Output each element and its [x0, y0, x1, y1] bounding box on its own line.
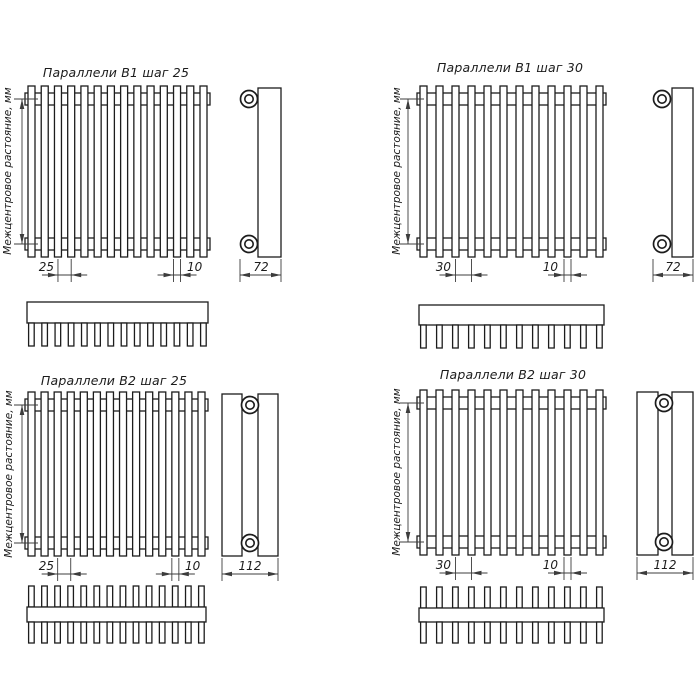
dimension-arrow [406, 532, 411, 542]
dimension-arrow [472, 273, 482, 278]
tube-section [82, 323, 88, 346]
tube-section [549, 325, 555, 348]
tube [106, 392, 113, 556]
bottom-header [417, 536, 606, 548]
step-dimension-label: 30 [436, 558, 452, 572]
bottom-header [417, 238, 606, 250]
tube [133, 392, 140, 556]
tube [596, 86, 603, 257]
tube-section [533, 587, 539, 608]
tube [516, 86, 523, 257]
tube-section [199, 622, 205, 643]
tube-section [469, 587, 475, 608]
step-dimension-label: 25 [39, 260, 54, 274]
front-view [25, 392, 208, 556]
dimension-arrow [653, 273, 663, 278]
radiator-technical-drawing: Параллели В1 шаг 25 25 10 72 Межцентрово… [0, 0, 700, 700]
bottom-header [25, 537, 208, 549]
diagram-b1-step-30: Параллели В1 шаг 30 30 10 72 Межцентрово… [391, 60, 693, 348]
dimension-arrow [406, 234, 411, 244]
dimension-arrow [240, 273, 250, 278]
tube [187, 86, 194, 257]
tube-section [485, 325, 491, 348]
tube-section [172, 586, 178, 607]
side-column [672, 392, 693, 555]
tube-section [42, 622, 48, 643]
tube-section [485, 587, 491, 608]
tube [94, 86, 101, 257]
top-view [27, 302, 208, 346]
tube-section [146, 622, 152, 643]
tube [420, 86, 427, 257]
tube [532, 86, 539, 257]
tube-section [201, 323, 207, 346]
tube [28, 86, 35, 257]
tube [146, 392, 153, 556]
axis-label: Межцентровое растояние, мм [3, 390, 15, 558]
tube [484, 86, 491, 257]
side-column [222, 394, 242, 556]
tube [452, 86, 459, 257]
tube-width-dimension-label: 10 [187, 260, 203, 274]
tube [596, 390, 603, 555]
dimension-arrow [20, 533, 25, 543]
tube-section [581, 622, 587, 643]
depth-dimension-label: 112 [239, 559, 262, 573]
tube-section [159, 586, 165, 607]
tube-section [453, 622, 459, 643]
tube-section [485, 622, 491, 643]
side-view [637, 392, 693, 555]
dimension-arrow [571, 273, 581, 278]
tube-section [501, 587, 507, 608]
tube-section [517, 622, 523, 643]
tube [185, 392, 192, 556]
tube [54, 392, 61, 556]
tube [160, 86, 167, 257]
tube-section [29, 323, 35, 346]
axis-label: Межцентровое растояние, мм [391, 87, 403, 255]
tube-section [597, 622, 603, 643]
tube-section [421, 325, 427, 348]
tube [436, 86, 443, 257]
tube [452, 390, 459, 555]
collector [419, 305, 604, 325]
tube [41, 392, 48, 556]
top-header [417, 93, 606, 105]
tube [468, 390, 475, 555]
tube-section [517, 325, 523, 348]
tube [500, 390, 507, 555]
dimension-arrow [71, 273, 81, 278]
collector [27, 607, 206, 622]
tube [564, 390, 571, 555]
tube-section [469, 325, 475, 348]
connection-port-inner [246, 401, 254, 409]
step-dimension-label: 30 [436, 260, 452, 274]
tube-width-dimension-label: 10 [185, 559, 201, 573]
dimension-arrow [571, 571, 581, 576]
tube-section [517, 587, 523, 608]
drawing-svg: Параллели В1 шаг 25 25 10 72 Межцентрово… [0, 0, 700, 700]
tube-section [597, 587, 603, 608]
top-header [25, 399, 208, 411]
tube-section [565, 587, 571, 608]
dimension-arrow [20, 234, 25, 244]
tube [532, 390, 539, 555]
dimension-arrow [164, 273, 174, 278]
depth-dimension-label: 112 [654, 558, 677, 572]
dimension-arrow [472, 571, 482, 576]
tube [107, 86, 114, 257]
top-header [417, 397, 606, 409]
side-view [222, 394, 278, 556]
tube-section [421, 587, 427, 608]
tube [134, 86, 141, 257]
side-column [672, 88, 693, 257]
front-view [417, 390, 606, 555]
tube-section [161, 323, 167, 346]
tube [500, 86, 507, 257]
top-view [419, 587, 604, 643]
tube [200, 86, 207, 257]
tube [564, 86, 571, 257]
tube-section [199, 586, 205, 607]
tube-section [565, 325, 571, 348]
tube-section [133, 586, 139, 607]
dimension-arrow [271, 273, 281, 278]
front-view [417, 86, 606, 257]
connection-port-inner [245, 95, 253, 103]
connection-port-inner [246, 539, 254, 547]
tube-section [133, 622, 139, 643]
tube-section [187, 323, 193, 346]
tube [548, 86, 555, 257]
tube [80, 392, 87, 556]
tube-section [186, 586, 192, 607]
diagram-title: Параллели В1 шаг 30 [437, 60, 583, 75]
dimension-arrow [268, 572, 278, 577]
tube-section [501, 325, 507, 348]
tube-section [95, 323, 101, 346]
dimension-arrow [222, 572, 232, 577]
tube-section [42, 323, 48, 346]
tube-section [581, 325, 587, 348]
tube-section [437, 587, 443, 608]
tube-section [121, 323, 127, 346]
tube [580, 390, 587, 555]
tube-section [549, 587, 555, 608]
tube-section [68, 586, 74, 607]
diagram-b2-step-30: Параллели В2 шаг 30 30 10 112 Межцентров… [391, 367, 693, 643]
tube-section [186, 622, 192, 643]
side-column [637, 392, 658, 555]
tube-section [174, 323, 180, 346]
tube-section [108, 323, 114, 346]
tube-section [159, 622, 165, 643]
diagram-title: Параллели В2 шаг 25 [41, 373, 187, 388]
tube-section [94, 586, 100, 607]
tube-section [94, 622, 100, 643]
tube [436, 390, 443, 555]
tube-section [437, 325, 443, 348]
dimension-arrow [406, 403, 411, 413]
tube [93, 392, 100, 556]
front-view [25, 86, 210, 257]
tube [121, 86, 128, 257]
diagram-b1-step-25: Параллели В1 шаг 25 25 10 72 Межцентрово… [2, 65, 281, 346]
tube [67, 392, 74, 556]
tube-section [29, 586, 35, 607]
tube [68, 86, 75, 257]
tube [516, 390, 523, 555]
connection-port-inner [660, 538, 668, 546]
dimension-arrow [20, 99, 25, 109]
top-view [419, 305, 604, 348]
dimension-arrow [683, 571, 693, 576]
tube-section [565, 622, 571, 643]
collector [419, 608, 604, 622]
connection-port-inner [660, 399, 668, 407]
tube-width-dimension-label: 10 [543, 260, 559, 274]
tube [198, 392, 205, 556]
side-column [258, 88, 281, 257]
tube-section [107, 622, 113, 643]
dimension-arrow [20, 405, 25, 415]
dimension-arrow [637, 571, 647, 576]
dimension-arrow [162, 572, 172, 577]
connection-port-inner [658, 240, 666, 248]
bottom-header [25, 238, 210, 250]
tube [484, 390, 491, 555]
tube [548, 390, 555, 555]
tube-section [469, 622, 475, 643]
axis-label: Межцентровое растояние, мм [391, 388, 403, 556]
collector [27, 302, 208, 323]
tube [147, 86, 154, 257]
connection-port-inner [658, 95, 666, 103]
tube-section [120, 586, 126, 607]
step-dimension-label: 25 [39, 559, 54, 573]
tube [159, 392, 166, 556]
tube-section [68, 622, 74, 643]
tube [174, 86, 181, 257]
dimension-lines [400, 99, 693, 282]
top-view [27, 586, 206, 643]
tube-section [146, 586, 152, 607]
diagram-title: Параллели В2 шаг 30 [440, 367, 586, 382]
tube [54, 86, 61, 257]
dimension-arrow [71, 572, 81, 577]
tube-section [42, 586, 48, 607]
tube-section [533, 325, 539, 348]
tube-section [68, 323, 74, 346]
tube-section [55, 586, 61, 607]
tube-section [120, 622, 126, 643]
tube [120, 392, 127, 556]
tube [81, 86, 88, 257]
tube-section [55, 323, 61, 346]
depth-dimension-label: 72 [665, 260, 680, 274]
tube-section [549, 622, 555, 643]
tube-section [581, 587, 587, 608]
tube [468, 86, 475, 257]
tube-section [55, 622, 61, 643]
tube-section [107, 586, 113, 607]
tube-section [437, 622, 443, 643]
tube-section [29, 622, 35, 643]
tube-section [453, 325, 459, 348]
depth-dimension-label: 72 [253, 260, 268, 274]
axis-label: Межцентровое растояние, мм [2, 87, 14, 255]
dimension-arrow [683, 273, 693, 278]
side-view [241, 88, 282, 257]
tube-section [134, 323, 140, 346]
tube [28, 392, 35, 556]
tube-section [597, 325, 603, 348]
tube-section [81, 586, 87, 607]
side-view [654, 88, 694, 257]
tube [172, 392, 179, 556]
dimension-arrow [406, 99, 411, 109]
top-header [25, 93, 210, 105]
tube-section [81, 622, 87, 643]
tube [420, 390, 427, 555]
tube-section [172, 622, 178, 643]
tube-section [501, 622, 507, 643]
diagram-title: Параллели В1 шаг 25 [43, 65, 189, 80]
tube-section [148, 323, 154, 346]
tube [41, 86, 48, 257]
tube-section [421, 622, 427, 643]
tube [580, 86, 587, 257]
diagram-b2-step-25: Параллели В2 шаг 25 25 10 112 Межцентров… [3, 373, 278, 643]
connection-port-inner [245, 240, 253, 248]
tube-width-dimension-label: 10 [543, 558, 559, 572]
tube-section [453, 587, 459, 608]
side-column [258, 394, 278, 556]
tube-section [533, 622, 539, 643]
